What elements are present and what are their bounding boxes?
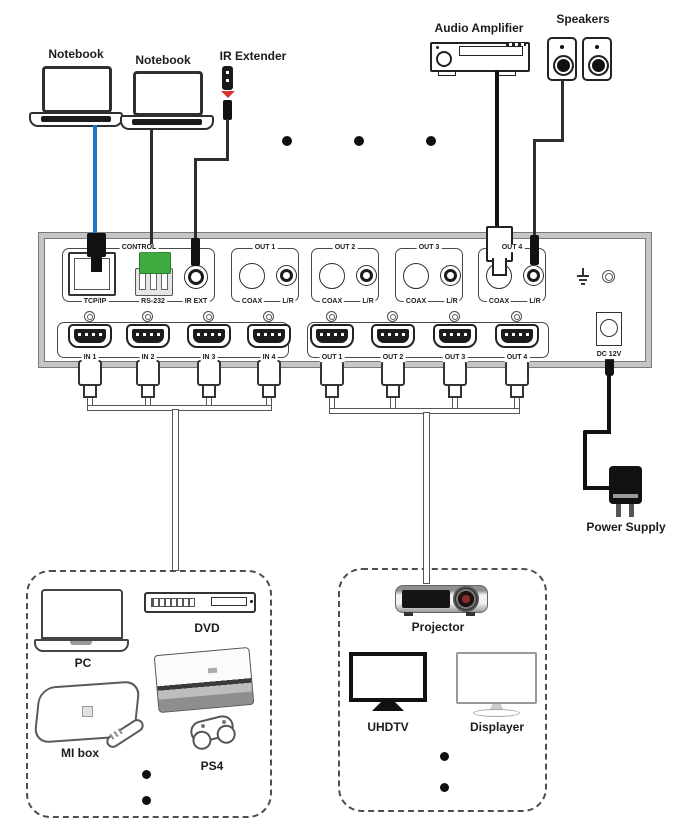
speakers-label: Speakers: [556, 12, 609, 26]
notebook2-icon-screen: [133, 71, 203, 116]
screw-icon: [263, 311, 274, 322]
hdmi-pins: [78, 333, 102, 336]
displayer-icon-screen: [456, 652, 537, 704]
notebook1-icon-base: [29, 112, 123, 127]
notebook-keyboard: [132, 119, 202, 125]
ground-icon-bar3: [581, 283, 585, 285]
hdmi-pins: [381, 333, 405, 336]
power-adapter-icon: [609, 466, 642, 504]
chassis-screw-icon: [602, 270, 615, 283]
pc-icon-screen: [41, 589, 123, 639]
out2-coax-jack: [319, 263, 345, 289]
ground-icon-bar1: [577, 275, 589, 277]
hdmi-out-trunk-cable: [423, 412, 430, 584]
speaker-woofer: [553, 55, 574, 76]
ps4-console-icon: [154, 647, 255, 713]
out1-lr-label: L/R: [280, 298, 295, 306]
amplifier-foot-left: [438, 71, 456, 76]
projector-foot-left: [404, 612, 413, 616]
out2-group-label: OUT 2: [333, 244, 358, 252]
rj45-plug: [87, 233, 106, 257]
out4-group-label: OUT 4: [500, 244, 525, 252]
rs232-label: RS-232: [139, 298, 167, 306]
dc-power-jack-pin: [600, 319, 618, 337]
amplifier-power-led: [436, 46, 439, 49]
speaker-cable-v2: [533, 139, 536, 237]
speaker-left-icon: [547, 37, 577, 81]
more-sources-dot: [282, 136, 292, 146]
ir-extender-plug: [223, 100, 232, 120]
ir-extender-icon-dot1: [226, 71, 229, 74]
hdmi-plug: [381, 360, 405, 386]
dvd-label: DVD: [194, 621, 219, 635]
screw-icon: [449, 311, 460, 322]
hdmi-in1-label: IN 1: [82, 354, 99, 362]
ground-icon-bar2: [579, 279, 587, 281]
hdmi-plug: [505, 360, 529, 386]
hdmi-pins: [257, 333, 281, 336]
speaker-plug: [530, 235, 539, 265]
amplifier-coax-cable: [495, 70, 499, 228]
ir-extender-label: IR Extender: [220, 49, 287, 63]
ir-cable-h: [194, 158, 229, 161]
amplifier-foot-right: [498, 71, 516, 76]
out1-coax-label: COAX: [240, 298, 264, 306]
rca-plug-tip: [492, 258, 507, 276]
dvd-disc-tray: [211, 597, 247, 606]
ir-ext-label: IR EXT: [183, 298, 210, 306]
screw-icon: [142, 311, 153, 322]
projector-lens-icon: [453, 586, 479, 612]
ir-extender-icon-dot2: [226, 79, 229, 82]
projector-label: Projector: [412, 620, 465, 634]
screw-icon: [84, 311, 95, 322]
hdmi-plug: [197, 360, 221, 386]
speaker-cable-h: [533, 139, 564, 142]
screw-icon: [511, 311, 522, 322]
power-adapter-prong-right: [629, 504, 634, 517]
out1-group-label: OUT 1: [253, 244, 278, 252]
speaker-tweeter: [595, 45, 599, 49]
rs232-slot-3: [161, 273, 168, 290]
out4-lr-label: L/R: [527, 298, 542, 306]
rj45-plug-tip: [91, 257, 102, 272]
speaker-right-icon: [582, 37, 612, 81]
hdmi-plug-neck: [262, 386, 276, 398]
hdmi-in-trunk-cable: [172, 409, 179, 571]
hdmi-plug: [443, 360, 467, 386]
projector-front-panel: [402, 590, 450, 608]
hdmi-pins: [320, 333, 344, 336]
rs232-slot-1: [139, 273, 146, 290]
controller-button: [201, 724, 205, 728]
amplifier-display-slot: [459, 46, 523, 56]
screw-icon: [387, 311, 398, 322]
hdmi-plug-neck: [510, 386, 524, 398]
amplifier-knob-icon: [436, 51, 452, 67]
power-cable-h1: [583, 430, 611, 434]
notebook2-label: Notebook: [135, 53, 190, 67]
hdmi-pins: [443, 333, 467, 336]
hdmi-out1-label: OUT 1: [320, 354, 345, 362]
hdmi-out4-label: OUT 4: [505, 354, 530, 362]
hdmi-in3-label: IN 3: [201, 354, 218, 362]
hdmi-plug-neck: [325, 386, 339, 398]
hdmi-in1-port: [68, 324, 112, 348]
out3-coax-jack: [403, 263, 429, 289]
screw-icon: [326, 311, 337, 322]
ir-cable-v1: [226, 119, 229, 161]
out4-lr-jack: [523, 265, 544, 286]
hdmi-in3-port: [187, 324, 231, 348]
more-sources-dot: [426, 136, 436, 146]
uhdtv-label: UHDTV: [367, 720, 408, 734]
hdmi-in2-port: [126, 324, 170, 348]
mi-logo: [82, 706, 93, 717]
hdmi-in-bus: [87, 405, 272, 411]
notebook1-icon-screen: [42, 66, 112, 113]
notebook2-icon-base: [120, 115, 214, 130]
out1-lr-jack: [276, 265, 297, 286]
dvd-eject-dot: [250, 600, 253, 603]
power-supply-label: Power Supply: [586, 520, 665, 534]
dc-power-label: DC 12V: [595, 351, 624, 359]
hdmi-plug-neck: [448, 386, 462, 398]
displayer-icon-base: [473, 709, 520, 717]
out3-group-label: OUT 3: [417, 244, 442, 252]
hdmi-plug: [257, 360, 281, 386]
hdmi-out3-label: OUT 3: [443, 354, 468, 362]
audio-amplifier-label: Audio Amplifier: [435, 21, 524, 35]
dvd-vent-grille: [151, 598, 195, 607]
notebook-keyboard: [41, 116, 111, 122]
ground-icon: [582, 268, 584, 275]
hdmi-plug-neck: [83, 386, 97, 398]
ir-cable-v2: [194, 158, 197, 240]
power-cable-v2: [583, 430, 587, 490]
power-cable-v1: [607, 374, 611, 434]
control-group-label: CONTROL: [120, 244, 159, 252]
power-adapter-band: [613, 494, 638, 498]
hdmi-plug: [136, 360, 160, 386]
hdmi-pins: [505, 333, 529, 336]
out2-lr-label: L/R: [360, 298, 375, 306]
screw-icon: [203, 311, 214, 322]
rs232-green-connector: [139, 252, 171, 274]
hdmi-plug: [78, 360, 102, 386]
controller-button: [222, 720, 226, 724]
hdmi-in4-label: IN 4: [261, 354, 278, 362]
speaker-woofer: [588, 55, 609, 76]
power-adapter-prong-left: [616, 504, 621, 517]
out1-coax-jack: [239, 263, 265, 289]
out3-coax-label: COAX: [404, 298, 428, 306]
tcpip-label: TCP/IP: [82, 298, 109, 306]
mi-box-label: MI box: [61, 746, 99, 760]
ps4-logo-mark: [208, 668, 217, 674]
hdmi-plug-neck: [202, 386, 216, 398]
pc-icon-notch: [70, 641, 92, 645]
hdmi-out2-port: [371, 324, 415, 348]
hdmi-out1-port: [310, 324, 354, 348]
more-sources-dot: [354, 136, 364, 146]
hdmi-out4-port: [495, 324, 539, 348]
ir-extender-icon: [222, 66, 233, 90]
hdmi-in2-label: IN 2: [140, 354, 157, 362]
projector-foot-right: [466, 612, 475, 616]
out3-lr-label: L/R: [444, 298, 459, 306]
hdmi-plug: [320, 360, 344, 386]
speaker-tweeter: [560, 45, 564, 49]
out2-lr-jack: [356, 265, 377, 286]
connection-diagram: CONTROL TCP/IP RS-232 IR EXT OUT 1 COAX …: [0, 0, 690, 839]
hdmi-plug-neck: [386, 386, 400, 398]
rs232-cable: [150, 129, 153, 256]
notebook1-label: Notebook: [48, 47, 103, 61]
hdmi-out2-label: OUT 2: [381, 354, 406, 362]
hdmi-pins: [136, 333, 160, 336]
ps4-label: PS4: [201, 759, 224, 773]
displayer-label: Displayer: [470, 720, 524, 734]
hdmi-out3-port: [433, 324, 477, 348]
ir-ext-jack: [184, 265, 208, 289]
ir-plug: [191, 238, 200, 266]
speaker-cable-v1: [561, 80, 564, 142]
out4-coax-label: COAX: [487, 298, 511, 306]
hdmi-pins: [197, 333, 221, 336]
out3-lr-jack: [440, 265, 461, 286]
hdmi-plug-neck: [141, 386, 155, 398]
ir-extender-red-arrow: [221, 91, 235, 98]
hdmi-in4-port: [247, 324, 291, 348]
ethernet-cable: [93, 125, 97, 238]
amplifier-vents: [506, 43, 526, 46]
out2-coax-label: COAX: [320, 298, 344, 306]
uhdtv-icon-screen: [349, 652, 427, 702]
pc-label: PC: [75, 656, 92, 670]
rs232-slot-2: [150, 273, 157, 290]
